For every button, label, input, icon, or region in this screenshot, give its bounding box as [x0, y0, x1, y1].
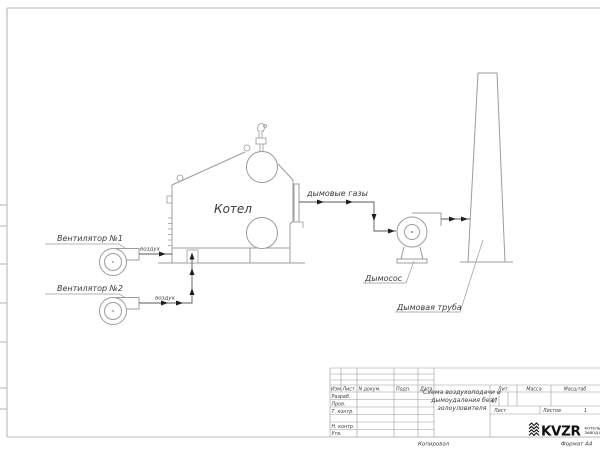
doc-title-line2: дымоудаления без: [430, 396, 493, 404]
lifting-lug: [244, 145, 250, 151]
logo-text: KVZR: [541, 424, 581, 440]
schematic-svg: Котел Вентилятор №1 Вентилятор №2 воздух…: [0, 0, 600, 450]
boiler-left-details: [167, 196, 172, 246]
row-nkontr: Н. контр.: [332, 424, 355, 430]
drawing-sheet: Котел Вентилятор №1 Вентилятор №2 воздух…: [0, 0, 600, 450]
air-label-2: воздух: [155, 296, 176, 302]
boiler-supports: [158, 248, 305, 263]
boiler-upper-drum: [247, 152, 278, 183]
flange-bracket: [294, 222, 303, 228]
air-label-1: воздух: [140, 247, 161, 253]
flue-gas-duct: [299, 202, 396, 231]
row-utv: Утв.: [332, 431, 342, 437]
fan1-symbol: [100, 249, 140, 276]
exhauster-label: Дымосос: [364, 274, 403, 283]
sheet-label: Лист: [493, 408, 506, 414]
lifting-lug: [177, 175, 183, 181]
col-podp: Подп.: [396, 386, 411, 392]
format-label: Формат А4: [561, 442, 593, 448]
fan2-symbol: [100, 298, 140, 325]
fan1-leader: [45, 244, 126, 249]
doc-title-line3: золоуловителя: [438, 405, 487, 412]
boiler-outlet-flange: [294, 184, 299, 222]
spring-icon: [529, 423, 539, 435]
row-razrab: Разраб.: [332, 394, 351, 400]
sheets-value: 1: [584, 408, 587, 414]
boiler-lower-drum: [247, 218, 278, 249]
scale-label: Масштаб: [564, 386, 587, 392]
smoke-exhauster-symbol: [397, 213, 441, 263]
sheets-label: Листов: [542, 408, 561, 414]
equipment: [100, 73, 514, 325]
col-ndokum: N докум.: [359, 386, 381, 392]
exhauster-pedestal: [397, 247, 427, 263]
mass-label: Масса: [526, 386, 541, 392]
lit-label: Лит.: [497, 386, 509, 392]
col-list: Лист: [342, 386, 355, 392]
doc-title-line1: Схема воздухоподачи и: [423, 389, 501, 396]
company-line2: ЗАВОД РЭ: [585, 430, 600, 435]
margin-ticks: [0, 205, 7, 409]
chimney-symbol: [460, 73, 513, 262]
row-tkontr: Т. контр.: [332, 409, 354, 415]
flue-gas-label: дымовые газы: [306, 189, 368, 198]
chimney-label: Дымовая труба: [396, 303, 462, 312]
sheet-frame: [0, 8, 600, 437]
col-izm: Изм.: [331, 386, 342, 392]
copied-label: Копировал: [418, 442, 450, 448]
lit-value: И: [492, 397, 498, 405]
fan1-label: Вентилятор №1: [57, 234, 123, 243]
boiler-label: Котел: [214, 202, 252, 216]
fan2-label: Вентилятор №2: [57, 284, 123, 293]
row-prov: Пров.: [332, 401, 346, 407]
